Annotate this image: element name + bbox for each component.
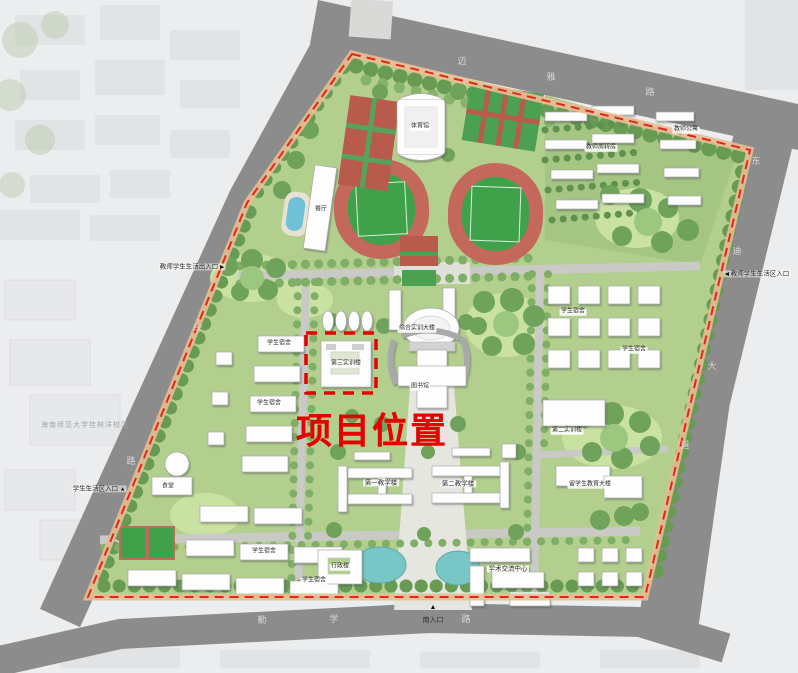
road-name-right-char-3: 道 [680, 441, 689, 451]
label-project-building: 第三实训楼 [329, 361, 362, 368]
label-dorm-5: 学生宿舍 [250, 549, 277, 556]
road-name-bottom-char-1: 学 [329, 615, 338, 625]
road-name-right-char-0: 东 [751, 157, 760, 167]
arrow-right-icon: ▶ [220, 264, 224, 270]
label-teacher-apartment: 教师公寓 [672, 127, 699, 134]
road-name-left-char-0: 学 [193, 325, 202, 335]
south-entrance-arrow-icon: ▲ [430, 604, 437, 612]
entrance-west-text: 教师学生生活出入口 [160, 263, 219, 270]
arrow-up-icon-west: ▲ [120, 486, 125, 492]
label-dining: 食堂 [160, 484, 175, 491]
road-name-right-char-2: 大 [707, 362, 716, 372]
label-library: 图书馆 [409, 384, 430, 391]
road-name-top-char-2: 路 [645, 88, 654, 98]
entrance-east-text: 教师学生生活区入口 [731, 270, 790, 277]
campus-master-plan: 迈 雅 路 东 迪 大 道 勤 学 路 学 路 体育馆 餐厅 综合实训大楼 图书… [0, 0, 798, 673]
label-dorm-6: 学生宿舍 [300, 578, 327, 585]
road-name-bottom-char-0: 勤 [257, 616, 266, 626]
label-teaching-1: 第一教学楼 [363, 479, 399, 486]
entrance-southwest-label: 学生生活区入口 ▲ [72, 485, 127, 492]
road-name-right-char-1: 迪 [732, 247, 741, 257]
road-name-top-char-0: 迈 [457, 57, 466, 67]
context-area-label: 海南师范大学桂林洋校区 [41, 422, 129, 430]
label-dorm-2: 学生宿舍 [620, 347, 647, 354]
label-teacher-housing: 教师周转房 [584, 145, 617, 152]
entrance-east-label: ◀ 教师学生生活区入口 [724, 270, 791, 277]
label-teaching-2: 第二教学楼 [440, 480, 476, 487]
label-gym: 体育馆 [409, 124, 430, 131]
label-dorm-4: 学生宿舍 [255, 401, 282, 408]
entrance-southwest-text: 学生生活区入口 [73, 485, 119, 492]
label-training-main: 综合实训大楼 [397, 326, 436, 333]
label-academic-center: 学术交流中心 [487, 565, 529, 572]
label-canteen: 餐厅 [313, 207, 328, 214]
road-name-top-char-1: 雅 [546, 73, 555, 83]
label-training-2: 第二实训楼 [550, 428, 583, 435]
label-intl-edu: 留学生教育大楼 [567, 482, 612, 489]
entrance-west-label: 教师学生生活出入口 ▶ [159, 263, 226, 270]
project-location-label: 项目位置 [296, 411, 448, 451]
arrow-left-icon: ◀ [725, 271, 729, 277]
road-name-bottom-char-2: 路 [461, 615, 470, 625]
road-name-left-char-1: 路 [126, 457, 135, 467]
site-plan-graphic [0, 0, 798, 673]
label-dorm-3: 学生宿舍 [265, 341, 292, 348]
label-admin: 行政楼 [329, 564, 350, 571]
south-entrance-label: 南入口 [423, 617, 444, 625]
label-dorm-1: 学生宿舍 [559, 309, 586, 316]
